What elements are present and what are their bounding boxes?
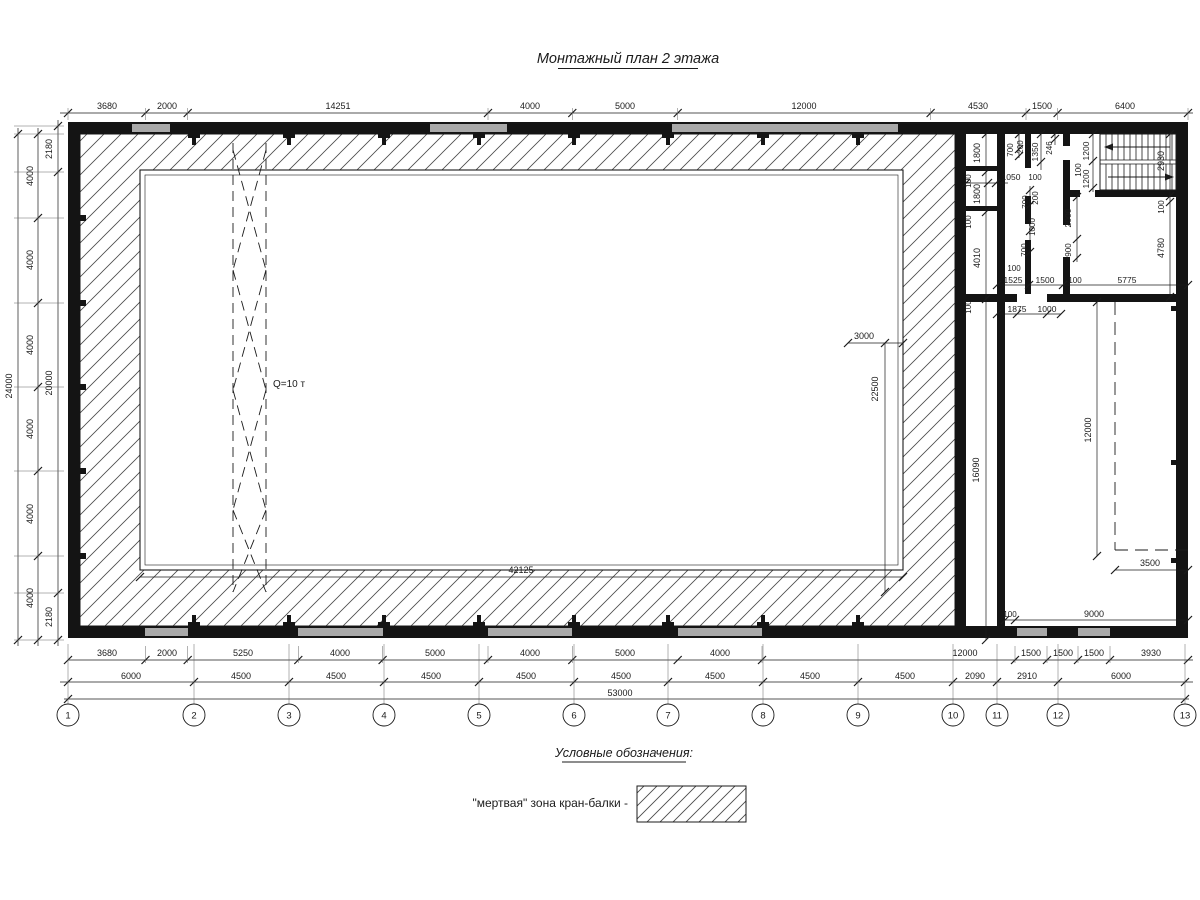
floor-plan-drawing: 3680200014251400050001200045301500640036… bbox=[0, 0, 1200, 900]
dimension-label: 4500 bbox=[800, 671, 820, 681]
dimension-label: 4000 bbox=[25, 166, 35, 186]
dimension-label: 2090 bbox=[965, 671, 985, 681]
dimension-label: 1500 bbox=[1036, 275, 1055, 285]
dimension-label: 900 bbox=[1064, 243, 1073, 257]
column-mark bbox=[287, 615, 291, 626]
dimension-label: 100 bbox=[1068, 276, 1082, 285]
dimension-label: 4000 bbox=[710, 648, 730, 658]
column-mark bbox=[80, 553, 86, 559]
dimension-label: 4780 bbox=[1156, 238, 1166, 258]
dimension-label: 4000 bbox=[25, 335, 35, 355]
column-mark bbox=[382, 134, 386, 145]
column-mark bbox=[999, 306, 1004, 311]
wall bbox=[966, 166, 997, 171]
dimension-label: 2910 bbox=[1017, 671, 1037, 681]
dimension-label: 5250 bbox=[233, 648, 253, 658]
dimension-label: 16090 bbox=[971, 457, 981, 482]
column-mark bbox=[856, 134, 860, 145]
wall bbox=[1176, 122, 1188, 638]
page-title: Монтажный план 2 этажа bbox=[537, 51, 719, 67]
window-opening bbox=[298, 628, 383, 636]
drawing-sheet: 3680200014251400050001200045301500640036… bbox=[0, 0, 1200, 900]
dimension-label: 2180 bbox=[44, 139, 54, 159]
column-mark bbox=[666, 134, 670, 145]
dimension-label: 12000 bbox=[791, 101, 816, 111]
grid-bubble-label: 3 bbox=[286, 711, 291, 722]
dimension-label: 4000 bbox=[25, 250, 35, 270]
legend-hatch-swatch bbox=[637, 786, 746, 822]
legend-item-label: "мертвая" зона кран-балки - bbox=[472, 796, 628, 810]
dimension-label: 1000 bbox=[1028, 218, 1037, 236]
dimension-label: 1500 bbox=[1053, 648, 1073, 658]
dimension-label: 200 bbox=[1016, 140, 1025, 154]
dimension-label: 100 bbox=[1003, 610, 1017, 619]
window-opening bbox=[1078, 628, 1110, 636]
grid-bubble-label: 4 bbox=[381, 711, 386, 722]
column-mark bbox=[572, 615, 576, 626]
dimension-label: 6400 bbox=[1115, 101, 1135, 111]
grid-bubble-label: 8 bbox=[760, 711, 765, 722]
building-plan bbox=[68, 122, 1188, 638]
dimension-label: 4500 bbox=[895, 671, 915, 681]
dimension-label: 4530 bbox=[968, 101, 988, 111]
wall bbox=[68, 122, 80, 638]
column-mark bbox=[80, 384, 86, 390]
dimension-label: 4000 bbox=[520, 648, 540, 658]
dimension-label: 9000 bbox=[1084, 609, 1104, 619]
dimension-label: 700 bbox=[1020, 243, 1029, 257]
dimension-label: 4500 bbox=[326, 671, 346, 681]
dimension-label: 700 bbox=[1006, 143, 1015, 157]
dimension-label: 6000 bbox=[1111, 671, 1131, 681]
dimension-label: 14251 bbox=[325, 101, 350, 111]
grid-bubble-label: 11 bbox=[992, 711, 1002, 722]
dimension-label: 22500 bbox=[870, 376, 880, 401]
dimension-label: 700 bbox=[1021, 195, 1030, 209]
dimension-label: 5775 bbox=[1118, 275, 1137, 285]
dimension-label: 3500 bbox=[1140, 558, 1160, 568]
dimension-label: 1875 bbox=[1008, 304, 1027, 314]
dimension-label: 1500 bbox=[1032, 101, 1052, 111]
dimension-label: 1200 bbox=[1081, 169, 1091, 188]
dimension-label: 4000 bbox=[25, 419, 35, 439]
dimension-label: 4500 bbox=[705, 671, 725, 681]
column-mark bbox=[80, 300, 86, 306]
dimension-label: 4500 bbox=[611, 671, 631, 681]
dimension-label: 100 bbox=[964, 300, 973, 314]
grid-bubble-label: 5 bbox=[476, 711, 481, 722]
dimension-label: 1200 bbox=[1081, 141, 1091, 160]
column-mark bbox=[192, 134, 196, 145]
crane-coverage-boundary bbox=[140, 170, 903, 570]
column-mark bbox=[287, 134, 291, 145]
column-mark bbox=[761, 615, 765, 626]
dimension-label: 12000 bbox=[1083, 417, 1093, 442]
wall bbox=[1063, 134, 1070, 146]
dimension-label: 1500 bbox=[1021, 648, 1041, 658]
grid-bubble-label: 12 bbox=[1053, 711, 1064, 722]
column-mark bbox=[477, 134, 481, 145]
wall bbox=[997, 134, 1005, 294]
dimension-label: 100 bbox=[1007, 264, 1021, 273]
dimension-label: 2000 bbox=[1063, 208, 1073, 227]
dimension-label: 1050 bbox=[1002, 172, 1021, 182]
dimension-label: 1525 bbox=[1004, 275, 1023, 285]
grid-bubble-label: 10 bbox=[948, 711, 959, 722]
dimension-label: 2000 bbox=[157, 648, 177, 658]
column-mark bbox=[192, 615, 196, 626]
dimension-label: 3680 bbox=[97, 101, 117, 111]
grid-bubble-label: 2 bbox=[191, 711, 196, 722]
dimension-label: 3680 bbox=[97, 648, 117, 658]
column-mark bbox=[999, 558, 1004, 563]
dimension-label: 4000 bbox=[330, 648, 350, 658]
column-mark bbox=[1171, 460, 1176, 465]
legend: Условные обозначения:"мертвая" зона кран… bbox=[472, 746, 746, 822]
dimension-label: 5000 bbox=[615, 648, 635, 658]
dimension-label: 100 bbox=[1028, 173, 1042, 182]
wall bbox=[955, 122, 966, 638]
column-mark bbox=[382, 615, 386, 626]
dimension-label: 5000 bbox=[425, 648, 445, 658]
column-mark bbox=[761, 134, 765, 145]
dimension-label: 100 bbox=[964, 215, 973, 229]
grid-bubble-label: 1 bbox=[65, 711, 70, 722]
column-mark bbox=[572, 134, 576, 145]
dimension-label: 4010 bbox=[972, 248, 982, 268]
dimension-label: 2180 bbox=[44, 607, 54, 627]
dimension-label: 4500 bbox=[421, 671, 441, 681]
dimension-label: 20000 bbox=[44, 370, 54, 395]
grid-bubble-label: 13 bbox=[1180, 711, 1191, 722]
grid-axis-bubbles: 12345678910111213 bbox=[57, 704, 1196, 726]
dimension-label: 3930 bbox=[1141, 648, 1161, 658]
dimension-label: 4000 bbox=[25, 504, 35, 524]
dimension-label: 1800 bbox=[972, 184, 982, 204]
column-mark bbox=[80, 215, 86, 221]
window-opening bbox=[1017, 628, 1047, 636]
wall bbox=[966, 206, 997, 211]
dimension-label: 4000 bbox=[520, 101, 540, 111]
dimension-label: 2000 bbox=[157, 101, 177, 111]
window-opening bbox=[430, 124, 507, 132]
window-opening bbox=[678, 628, 762, 636]
dimension-label: 1500 bbox=[1084, 648, 1104, 658]
dimension-label: 4500 bbox=[516, 671, 536, 681]
window-opening bbox=[672, 124, 898, 132]
grid-bubble-label: 6 bbox=[571, 711, 576, 722]
column-mark bbox=[999, 460, 1004, 465]
dimension-label: 3000 bbox=[854, 331, 874, 341]
column-mark bbox=[80, 468, 86, 474]
dimension-label: 100 bbox=[1157, 200, 1166, 214]
wall bbox=[1063, 160, 1070, 192]
grid-bubble-label: 9 bbox=[855, 711, 860, 722]
dimension-label: 2930 bbox=[1156, 151, 1166, 171]
wall bbox=[1095, 190, 1188, 197]
window-opening bbox=[145, 628, 188, 636]
window-opening bbox=[132, 124, 170, 132]
dimension-label: 24000 bbox=[4, 373, 14, 398]
grid-bubble-label: 7 bbox=[665, 711, 670, 722]
dimension-label: 4500 bbox=[231, 671, 251, 681]
dimension-label: 5000 bbox=[615, 101, 635, 111]
dimension-label: 200 bbox=[1031, 191, 1040, 205]
column-mark bbox=[666, 615, 670, 626]
column-mark bbox=[856, 615, 860, 626]
dimension-label: 1350 bbox=[1030, 142, 1040, 161]
dimension-label: 53000 bbox=[607, 688, 632, 698]
window-opening bbox=[488, 628, 572, 636]
dimension-label: Q=10 т bbox=[273, 379, 306, 390]
legend-heading: Условные обозначения: bbox=[554, 746, 693, 760]
column-mark bbox=[477, 615, 481, 626]
column-mark bbox=[1171, 558, 1176, 563]
dimension-label: 4000 bbox=[25, 588, 35, 608]
dimension-label: 1800 bbox=[972, 143, 982, 163]
dimension-label: 246 bbox=[1045, 141, 1054, 155]
dimension-label: 1000 bbox=[1038, 304, 1057, 314]
dimension-label: 6000 bbox=[121, 671, 141, 681]
dimension-label: 42125 bbox=[508, 565, 533, 575]
dimension-label: 12000 bbox=[952, 648, 977, 658]
title-block: Монтажный план 2 этажа bbox=[537, 51, 719, 69]
column-mark bbox=[1171, 306, 1176, 311]
